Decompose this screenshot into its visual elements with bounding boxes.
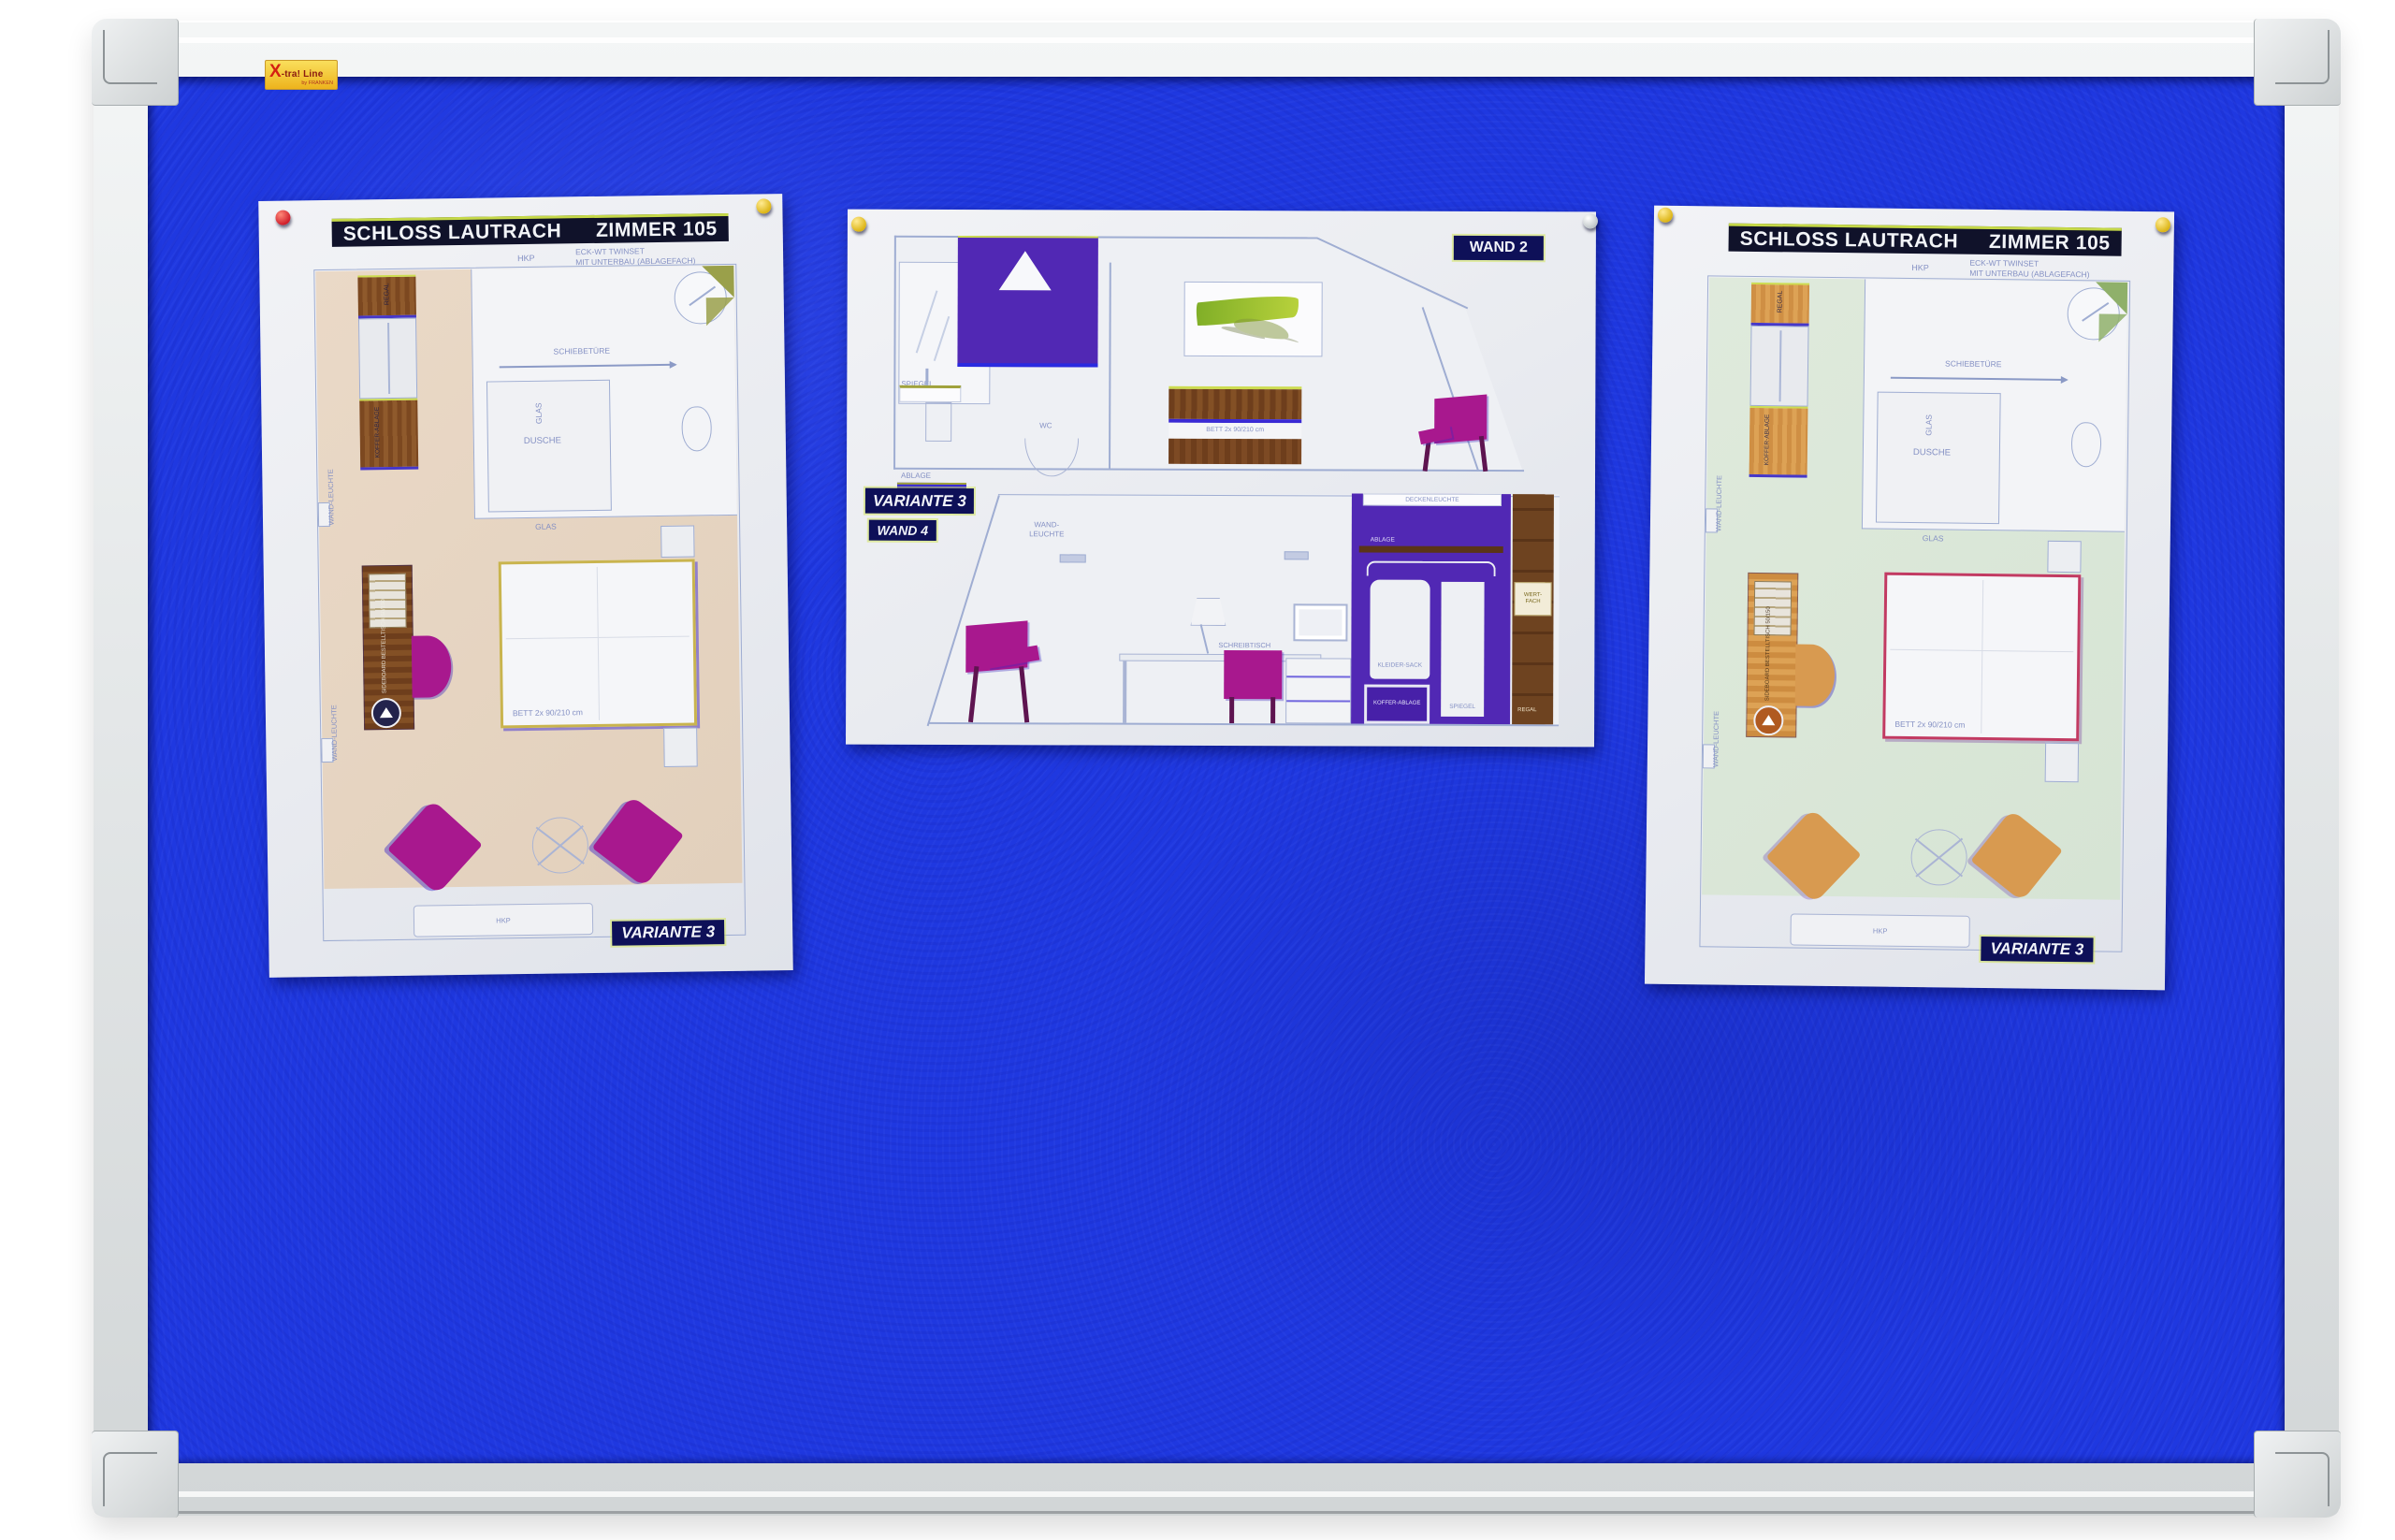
minibar-cabinet — [1285, 658, 1351, 723]
shelf-label: REGAL — [1777, 291, 1785, 313]
cabinet-shelf-line — [1286, 676, 1350, 677]
wall-picture — [1183, 282, 1322, 357]
pushpin-yellow-icon — [1658, 208, 1673, 223]
chair-back — [1224, 650, 1282, 699]
corner-cap-bottom-left — [92, 1431, 179, 1518]
desk-note: SIDEBOARD BESTELLTISCH 50/150 — [1765, 606, 1773, 701]
desk-label: SCHREIBTISCH — [1218, 641, 1270, 649]
bed-elevation: BETT 2x 90/210 cm — [1168, 386, 1301, 469]
sliding-door-label: SCHIEBETÜRE — [1945, 358, 2002, 369]
washbasin — [899, 385, 961, 402]
wood-shelf — [1359, 546, 1503, 554]
hkp-label: HKP — [517, 254, 535, 264]
safe-box-label: WERT-FACH — [1517, 592, 1549, 605]
variant-tag: VARIANTE 3 — [865, 488, 974, 514]
shower: DUSCHE — [486, 380, 612, 513]
glass-wall-label: GLAS — [534, 402, 544, 424]
tap-line — [925, 369, 928, 385]
cabinet-shelf-line — [1286, 700, 1350, 702]
bed-base — [1168, 439, 1301, 464]
variant-tag: VARIANTE 3 — [612, 920, 724, 946]
garment-bag: KLEIDER-SACK — [1370, 580, 1430, 679]
radiator: HKP — [414, 903, 593, 937]
bed: BETT 2x 90/210 cm — [1882, 573, 2081, 742]
room-number: ZIMMER 105 — [1989, 231, 2111, 255]
sliding-door-line — [500, 364, 675, 369]
wall-2-tag: WAND 2 — [1454, 236, 1544, 260]
basin-pedestal — [925, 402, 951, 442]
document-title-bar: SCHLOSS LAUTRACH ZIMMER 105 — [332, 213, 729, 247]
document-title: SCHLOSS LAUTRACH — [1740, 227, 1959, 253]
frame-highlight — [150, 37, 2283, 43]
nightstand — [663, 727, 698, 766]
wc-label: WC — [1039, 421, 1052, 430]
room-number: ZIMMER 105 — [596, 218, 718, 242]
wall-lamp-label: WAND-LEUCHTE — [1017, 520, 1077, 538]
shelf-label: ABLAGE — [901, 472, 931, 481]
bed-label: BETT 2x 90/210 cm — [513, 707, 583, 718]
basin-counter — [702, 266, 733, 298]
nightstand — [2047, 541, 2081, 573]
luggage-shelf-label: KOFFER-ABLAGE — [1764, 414, 1771, 466]
hkp-label: HKP — [1911, 263, 1929, 273]
desk-leg — [1123, 661, 1126, 723]
corner-cap-top-right — [2254, 19, 2341, 106]
wall-lamp-label: WAND-LEUCHTE — [327, 469, 336, 525]
chair-leg — [1270, 697, 1275, 723]
toilet — [681, 406, 712, 451]
bed-label: BETT 2x 90/210 cm — [1894, 719, 1965, 730]
glass-wall-label: GLAS — [1923, 533, 1944, 543]
wall-4-tag: WAND 4 — [869, 520, 936, 541]
ceiling-light-label: DECKENLEUCHTE — [1405, 496, 1459, 503]
bed-headboard — [1168, 389, 1301, 419]
product-photo: X -tra! Line by FRANKEN SCHLOSS LAUTRACH… — [0, 0, 2395, 1540]
nightstand — [660, 525, 694, 557]
basin-counter — [706, 298, 734, 326]
chair-leg — [1229, 697, 1234, 723]
safe-box: WERT-FACH — [1514, 582, 1551, 616]
corner-cap-top-left — [92, 19, 179, 106]
wc-bowl — [1024, 438, 1079, 476]
brand-byline: by FRANKEN — [269, 81, 333, 87]
radiator-label: HKP — [1873, 926, 1888, 935]
floor-plan: SCHIEBETÜRE DUSCHE GLAS GLAS REGAL KOFFE… — [1699, 275, 2130, 952]
wall-lamp — [1285, 551, 1309, 559]
pushpin-yellow-icon — [2155, 217, 2170, 232]
shelf-label: REGAL — [384, 283, 392, 305]
shower-wall-purple — [957, 236, 1097, 368]
pushpin-yellow-icon — [756, 198, 771, 213]
garment-bag-label: KLEIDER-SACK — [1377, 662, 1422, 670]
brand-label: X -tra! Line by FRANKEN — [265, 60, 338, 90]
wardrobe — [358, 318, 417, 400]
ceiling-lamp-cone — [999, 251, 1052, 290]
desk-note: SIDEBOARD BESTELLTISCH 50/150 — [381, 599, 389, 693]
luggage-rack-cabinet: KOFFER-ABLAGE — [1749, 406, 1808, 478]
brand-x: X — [269, 63, 282, 80]
bed: BETT 2x 90/210 cm — [499, 559, 697, 728]
wardrobe — [1749, 326, 1808, 407]
luggage-shelf-label: KOFFER-ABLAGE — [1372, 701, 1422, 707]
shelf-column-label: REGAL — [1517, 707, 1536, 714]
basin-counter — [2098, 313, 2126, 341]
document-title: SCHLOSS LAUTRACH — [343, 220, 562, 245]
pushpin-yellow-icon — [851, 217, 866, 232]
hanging-rail — [1367, 561, 1496, 576]
pushpin-red-icon — [275, 210, 290, 225]
wall-lamp — [1060, 554, 1086, 562]
brand-name: -tra! Line — [282, 70, 324, 80]
wood-shelf-column: WERT-FACH REGAL — [1512, 494, 1554, 724]
bed-label: BETT 2x 90/210 cm — [1206, 427, 1264, 435]
sliding-door-label: SCHIEBETÜRE — [553, 346, 610, 356]
eck-wt-label-line1: ECK-WT TWINSET — [575, 246, 645, 256]
shower-label: DUSCHE — [1913, 447, 1951, 458]
mirror-streak — [934, 316, 951, 361]
shower: DUSCHE — [1876, 392, 2001, 525]
shower-label: DUSCHE — [524, 435, 561, 446]
mirror-streak — [916, 290, 938, 353]
eck-wt-label-line1: ECK-WT TWINSET — [1969, 258, 2039, 269]
shelf-label: ABLAGE — [1371, 537, 1395, 545]
bed-label-band: BETT 2x 90/210 cm — [1168, 423, 1301, 439]
document-right-floorplan: SCHLOSS LAUTRACH ZIMMER 105 HKP ECK-WT T… — [1645, 206, 2174, 991]
frame-shadow — [131, 1511, 2301, 1514]
bathroom: SCHIEBETÜRE DUSCHE GLAS — [1862, 279, 2127, 531]
pushpin-gray-icon — [1583, 213, 1598, 228]
nightstand — [2045, 743, 2080, 782]
floor-plan: SCHIEBETÜRE DUSCHE GLAS GLAS REGAL KOFFE… — [313, 264, 746, 941]
radiator-label: HKP — [496, 916, 511, 924]
shelf-cabinet: REGAL — [357, 275, 416, 319]
wardrobe-mirror-label: SPIEGEL — [1449, 704, 1475, 711]
corner-cap-bottom-right — [2254, 1431, 2341, 1518]
bathroom: SCHIEBETÜRE DUSCHE GLAS — [471, 266, 737, 519]
wall-lamp-label: WAND-LEUCHTE — [1711, 711, 1720, 767]
document-left-floorplan: SCHLOSS LAUTRACH ZIMMER 105 HKP ECK-WT T… — [258, 194, 793, 978]
tv-screen — [1293, 603, 1347, 641]
luggage-shelf-box: KOFFER-ABLAGE — [1364, 685, 1430, 724]
document-middle-elevations: WAND 2 SPIEGEL WC ABLAGE — [846, 210, 1596, 748]
luggage-rack-cabinet: KOFFER-ABLAGE — [359, 399, 418, 471]
glass-wall-label: GLAS — [535, 522, 557, 532]
toilet — [2071, 422, 2102, 467]
frame-highlight — [150, 1491, 2283, 1497]
document-title-bar: SCHLOSS LAUTRACH ZIMMER 105 — [1729, 224, 2122, 256]
ceiling-light-bar: DECKENLEUCHTE — [1363, 494, 1502, 507]
radiator: HKP — [1790, 913, 1969, 947]
shelf-cabinet: REGAL — [1751, 283, 1810, 327]
wall-lamp-label: WAND-LEUCHTE — [329, 705, 339, 761]
luggage-shelf-label: KOFFER-ABLAGE — [374, 407, 383, 458]
eck-wt-label-line2: MIT UNTERBAU (ABLAGEFACH) — [1969, 269, 2089, 280]
wall-lamp-label: WAND-LEUCHTE — [1714, 475, 1723, 531]
variant-tag: VARIANTE 3 — [1981, 937, 2093, 962]
wardrobe-mirror: SPIEGEL — [1441, 582, 1485, 717]
basin-counter — [2096, 282, 2127, 313]
glass-wall-label: GLAS — [1923, 414, 1933, 436]
sliding-door-line — [1891, 377, 2067, 381]
